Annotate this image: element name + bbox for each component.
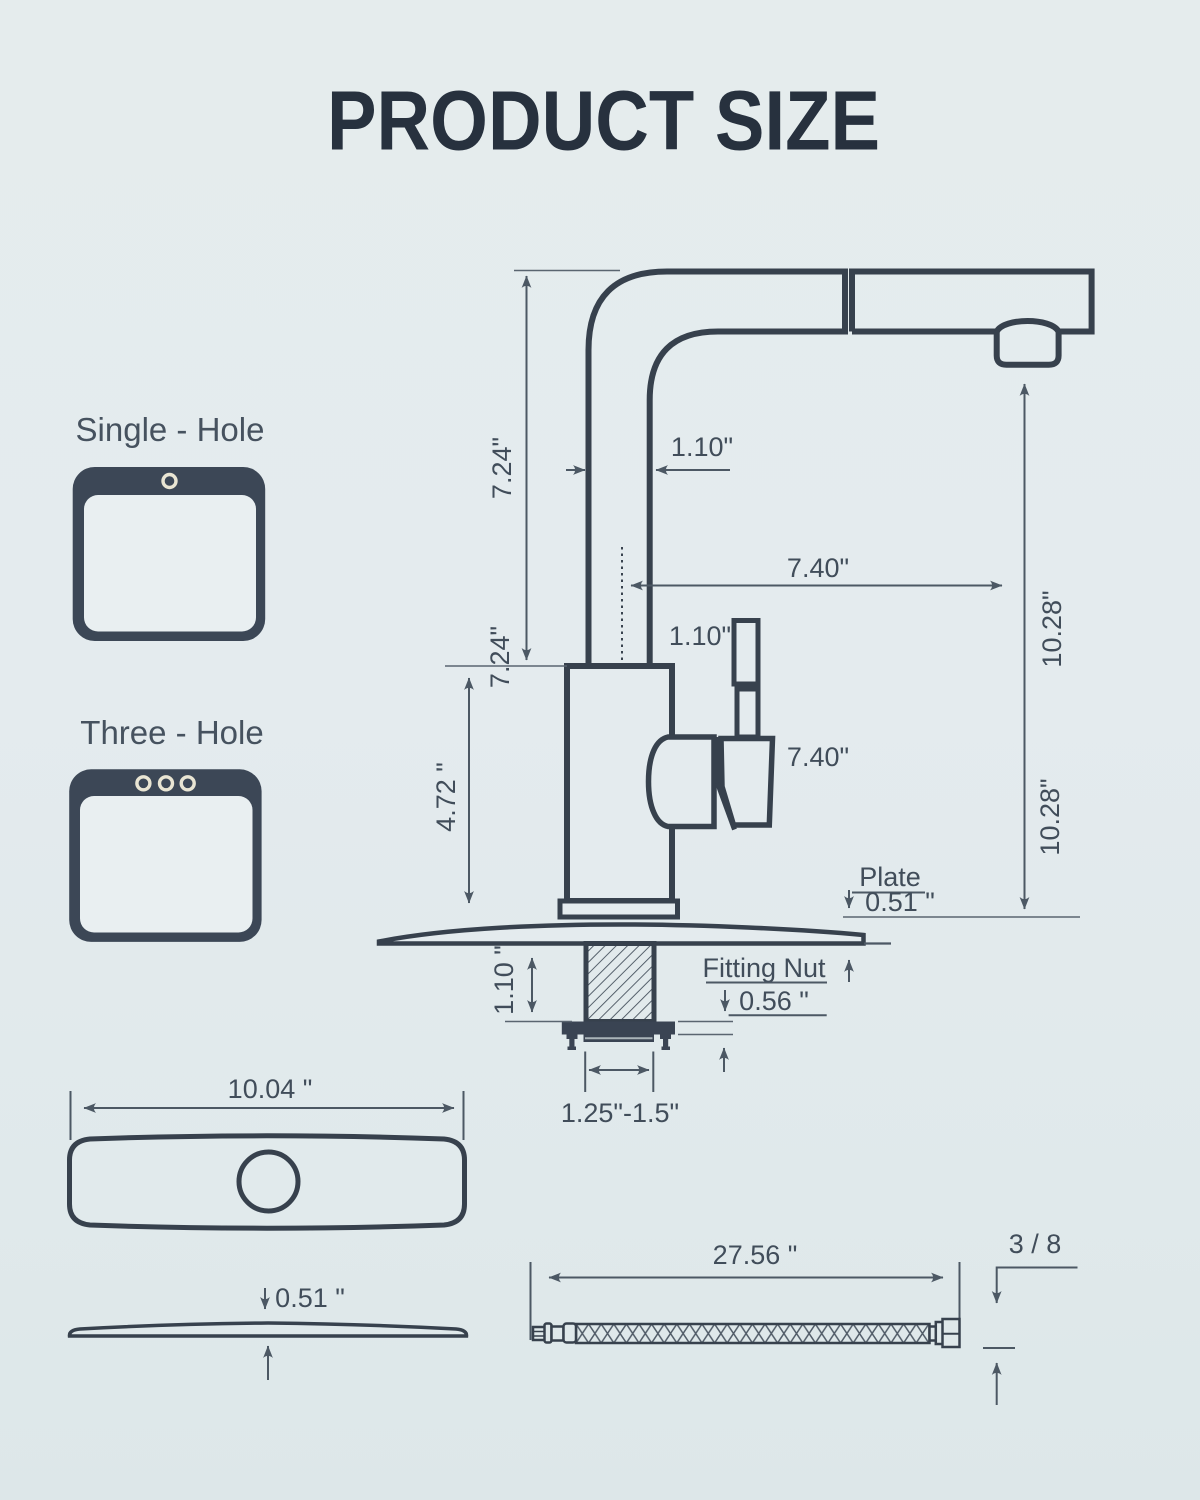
svg-text:7.24": 7.24" [487, 437, 517, 499]
svg-text:1.25"-1.5": 1.25"-1.5" [561, 1098, 679, 1128]
svg-text:1.10 ": 1.10 " [489, 945, 519, 1015]
svg-text:0.51 ": 0.51 " [275, 1283, 345, 1313]
svg-text:0.56 ": 0.56 " [739, 986, 809, 1016]
svg-text:1.10": 1.10" [669, 621, 731, 651]
svg-text:3 / 8: 3 / 8 [1009, 1229, 1062, 1259]
svg-text:10.28": 10.28" [1035, 778, 1065, 855]
svg-text:10.04 ": 10.04 " [228, 1074, 313, 1104]
svg-text:7.40": 7.40" [787, 553, 849, 583]
svg-text:Three - Hole: Three - Hole [80, 714, 263, 751]
svg-text:0.51 ": 0.51 " [865, 887, 935, 917]
svg-text:Single - Hole: Single - Hole [76, 411, 265, 448]
svg-text:Fitting Nut: Fitting Nut [702, 953, 826, 983]
svg-text:27.56 ": 27.56 " [713, 1240, 798, 1270]
svg-text:PRODUCT SIZE: PRODUCT SIZE [327, 74, 880, 168]
svg-text:7.40": 7.40" [787, 742, 849, 772]
svg-text:7.24": 7.24" [485, 626, 515, 688]
svg-text:4.72 ": 4.72 " [431, 762, 461, 832]
svg-text:10.28": 10.28" [1037, 590, 1067, 667]
svg-text:1.10": 1.10" [671, 432, 733, 462]
